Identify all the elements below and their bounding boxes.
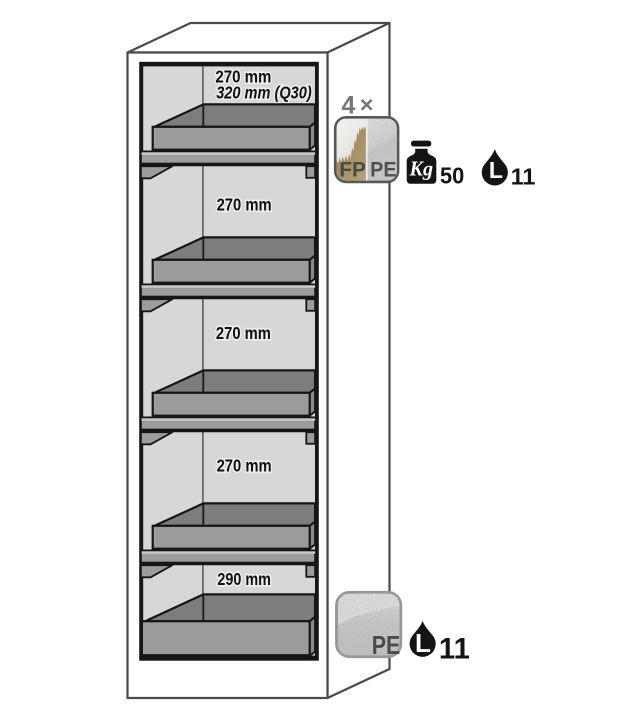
svg-text:270 mm: 270 mm	[216, 323, 271, 343]
svg-text:4: 4	[342, 92, 356, 120]
svg-text:270 mm: 270 mm	[217, 456, 272, 476]
svg-text:L: L	[489, 157, 503, 183]
svg-text:11: 11	[439, 632, 470, 665]
svg-text:Kg: Kg	[409, 157, 434, 181]
svg-text:270 mm: 270 mm	[217, 195, 272, 215]
svg-text:320 mm (Q30): 320 mm (Q30)	[216, 83, 312, 103]
svg-text:290 mm: 290 mm	[217, 569, 271, 589]
svg-text:FP: FP	[339, 157, 366, 181]
svg-text:PE: PE	[370, 157, 397, 181]
svg-text:50: 50	[440, 163, 464, 189]
svg-text:11: 11	[511, 164, 536, 190]
svg-text:L: L	[415, 628, 431, 658]
svg-text:PE: PE	[372, 630, 401, 660]
svg-text:×: ×	[360, 91, 374, 117]
